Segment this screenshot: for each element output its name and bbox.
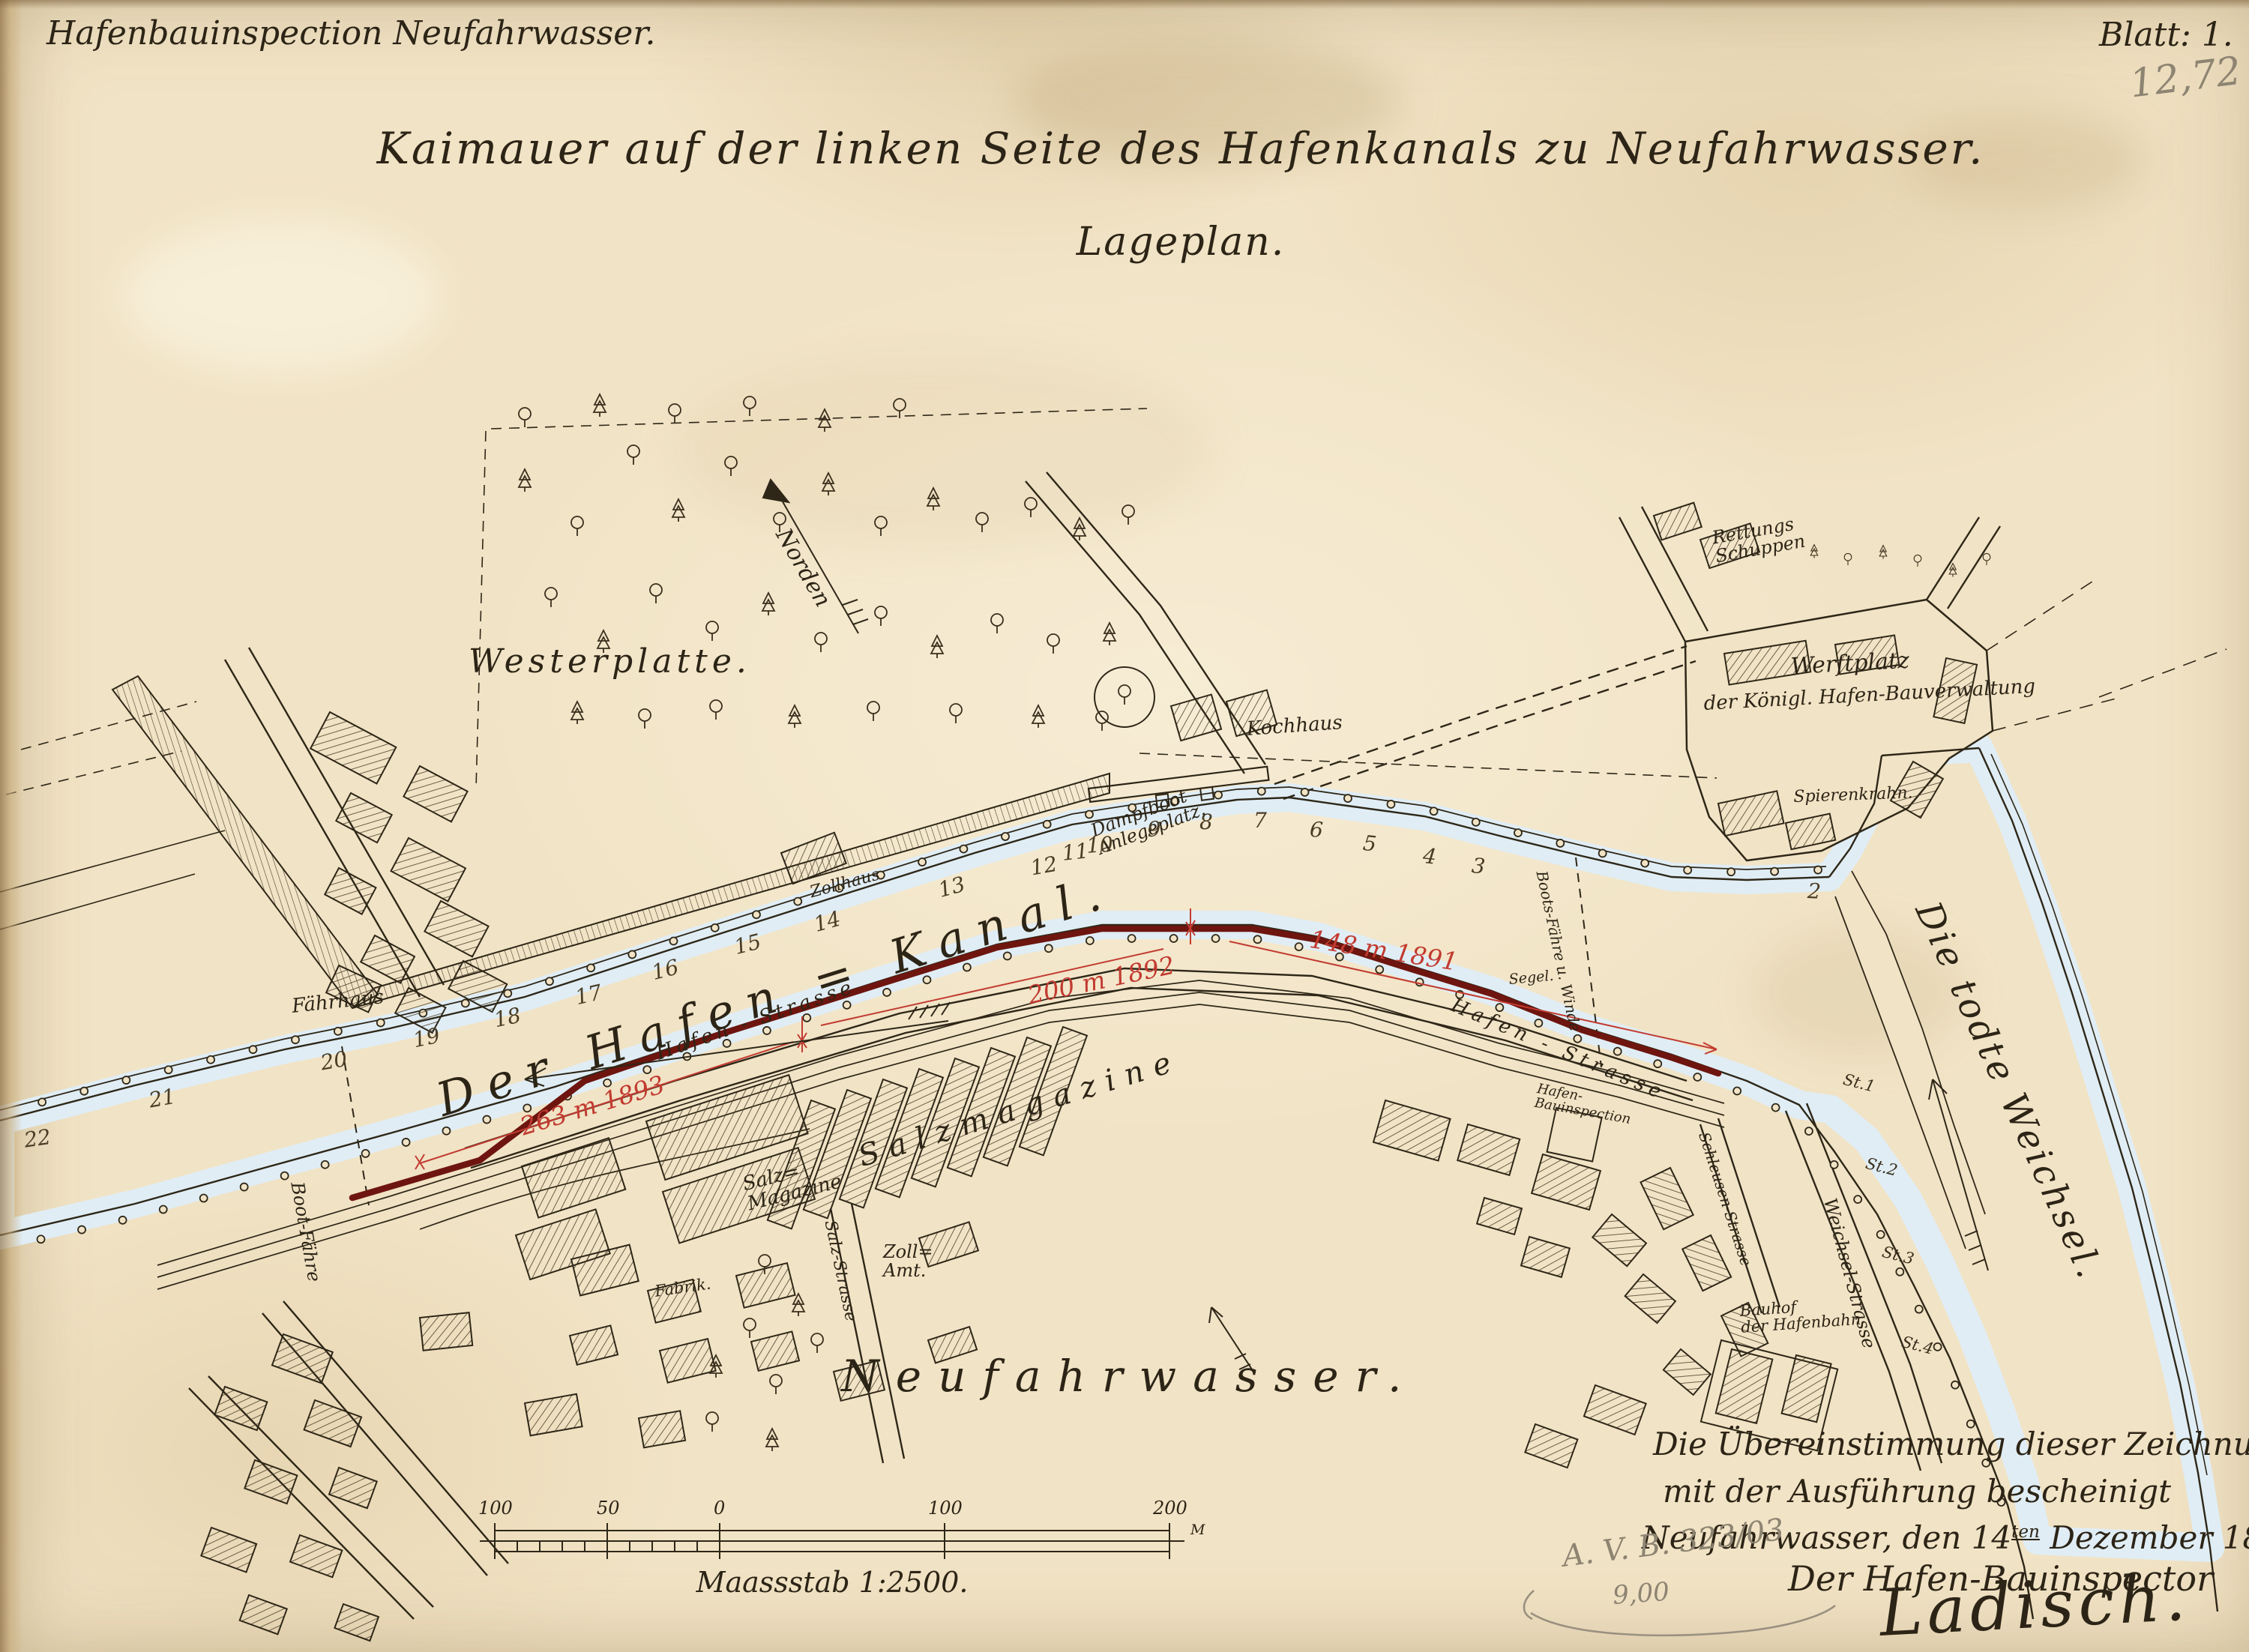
station-mark: St.3 bbox=[1880, 1243, 1915, 1268]
station-mark: St.4 bbox=[1900, 1333, 1935, 1358]
station-marks: St.1St.2St.3St.4 bbox=[0, 0, 2249, 1652]
scan-left-edge bbox=[0, 0, 22, 1652]
station-mark: St.2 bbox=[1864, 1154, 1899, 1180]
scan-top-edge bbox=[0, 0, 2249, 9]
scanned-map-page: Hafenbauinspection Neufahrwasser. Blatt:… bbox=[0, 0, 2249, 1652]
station-mark: St.1 bbox=[1841, 1070, 1876, 1096]
